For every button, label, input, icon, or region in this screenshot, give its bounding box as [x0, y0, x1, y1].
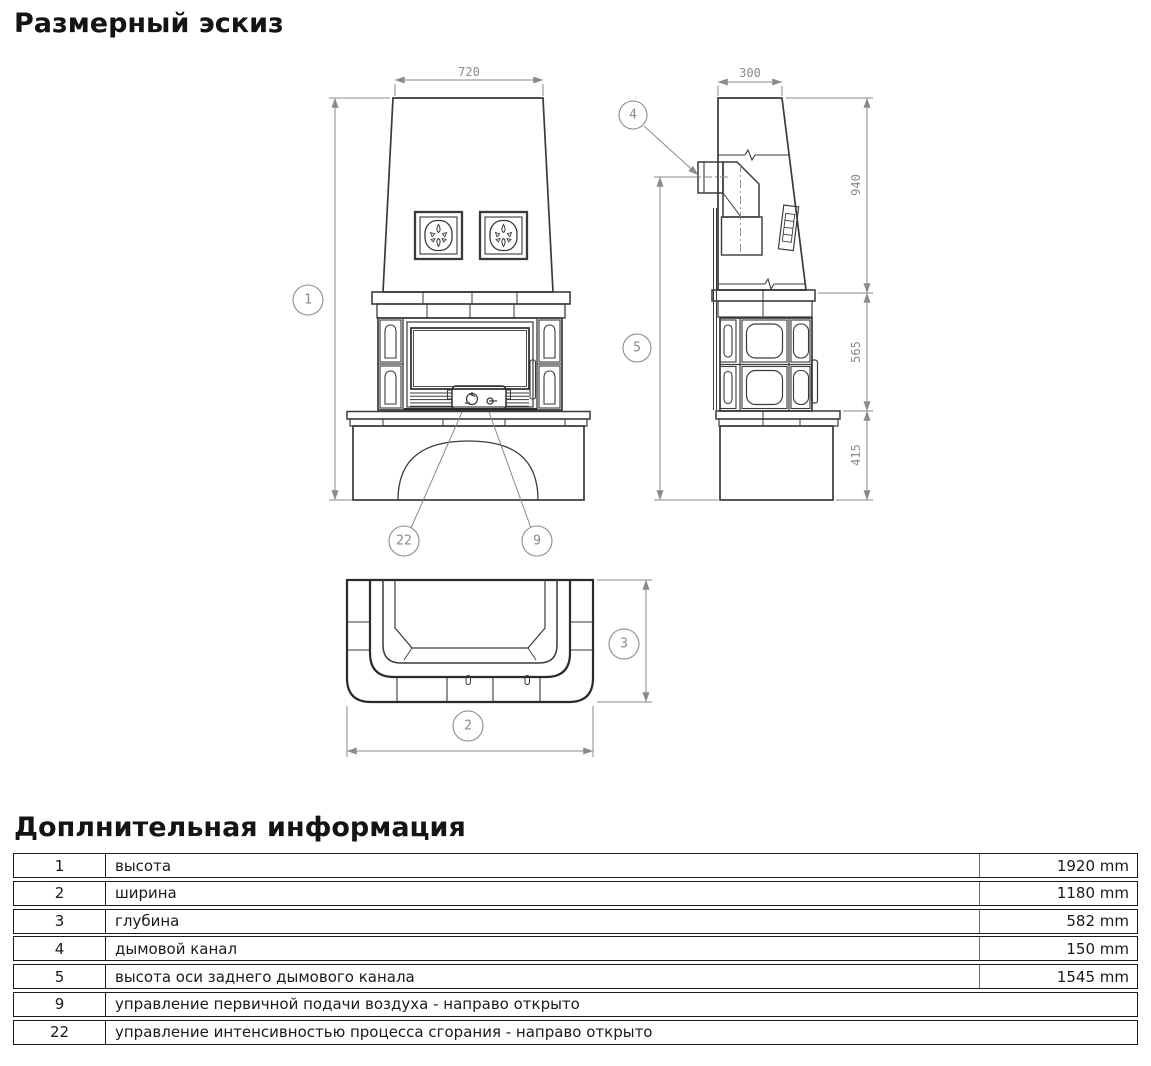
- row-number: 3: [14, 910, 106, 933]
- dim-side-depth: 300: [739, 66, 761, 80]
- row-label: ширина: [106, 882, 979, 905]
- dim-front-width: 720: [458, 65, 480, 79]
- dim-side-lower: 415: [849, 444, 863, 466]
- row-number: 5: [14, 965, 106, 988]
- row-number: 1: [14, 854, 106, 877]
- dimensional-sketch: 720 1 300 940 565 415 5 4 22 9: [0, 0, 1151, 800]
- table-row: 9 управление первичной подачи воздуха - …: [13, 992, 1138, 1017]
- side-view: [688, 98, 840, 500]
- table-title: Доплнительная информация: [14, 812, 466, 843]
- row-label: высота оси заднего дымового канала: [106, 965, 979, 988]
- page: { "page": { "title": "Размерный эскиз", …: [0, 0, 1151, 1066]
- row-value: 1180 mm: [979, 882, 1137, 905]
- svg-text:3: 3: [620, 637, 628, 652]
- row-label: управление интенсивностью процесса сгора…: [106, 1021, 1127, 1044]
- row-value: 150 mm: [979, 937, 1137, 960]
- row-value: 582 mm: [979, 910, 1137, 933]
- svg-text:1: 1: [304, 293, 312, 308]
- row-number: 4: [14, 937, 106, 960]
- row-number: 22: [14, 1021, 106, 1044]
- table-row: 3 глубина 582 mm: [13, 909, 1138, 934]
- row-value: [1127, 993, 1137, 1016]
- row-value: [1127, 1021, 1137, 1044]
- row-value: 1545 mm: [979, 965, 1137, 988]
- info-table: 1 высота 1920 mm 2 ширина 1180 mm 3 глуб…: [13, 853, 1138, 1048]
- top-view: [347, 580, 593, 702]
- row-label: глубина: [106, 910, 979, 933]
- row-label: высота: [106, 854, 979, 877]
- svg-text:9: 9: [533, 534, 541, 549]
- svg-text:2: 2: [464, 719, 472, 734]
- row-label: дымовой канал: [106, 937, 979, 960]
- svg-text:5: 5: [633, 341, 641, 356]
- table-row: 2 ширина 1180 mm: [13, 881, 1138, 906]
- table-row: 4 дымовой канал 150 mm: [13, 936, 1138, 961]
- row-number: 2: [14, 882, 106, 905]
- row-label: управление первичной подачи воздуха - на…: [106, 993, 1127, 1016]
- svg-text:22: 22: [396, 534, 412, 549]
- table-row: 1 высота 1920 mm: [13, 853, 1138, 878]
- dim-side-upper: 940: [849, 174, 863, 196]
- table-row: 5 высота оси заднего дымового канала 154…: [13, 964, 1138, 989]
- dim-side-middle: 565: [849, 341, 863, 363]
- row-number: 9: [14, 993, 106, 1016]
- table-row: 22 управление интенсивностью процесса сг…: [13, 1020, 1138, 1045]
- front-view: [347, 98, 590, 500]
- svg-text:4: 4: [629, 108, 637, 123]
- row-value: 1920 mm: [979, 854, 1137, 877]
